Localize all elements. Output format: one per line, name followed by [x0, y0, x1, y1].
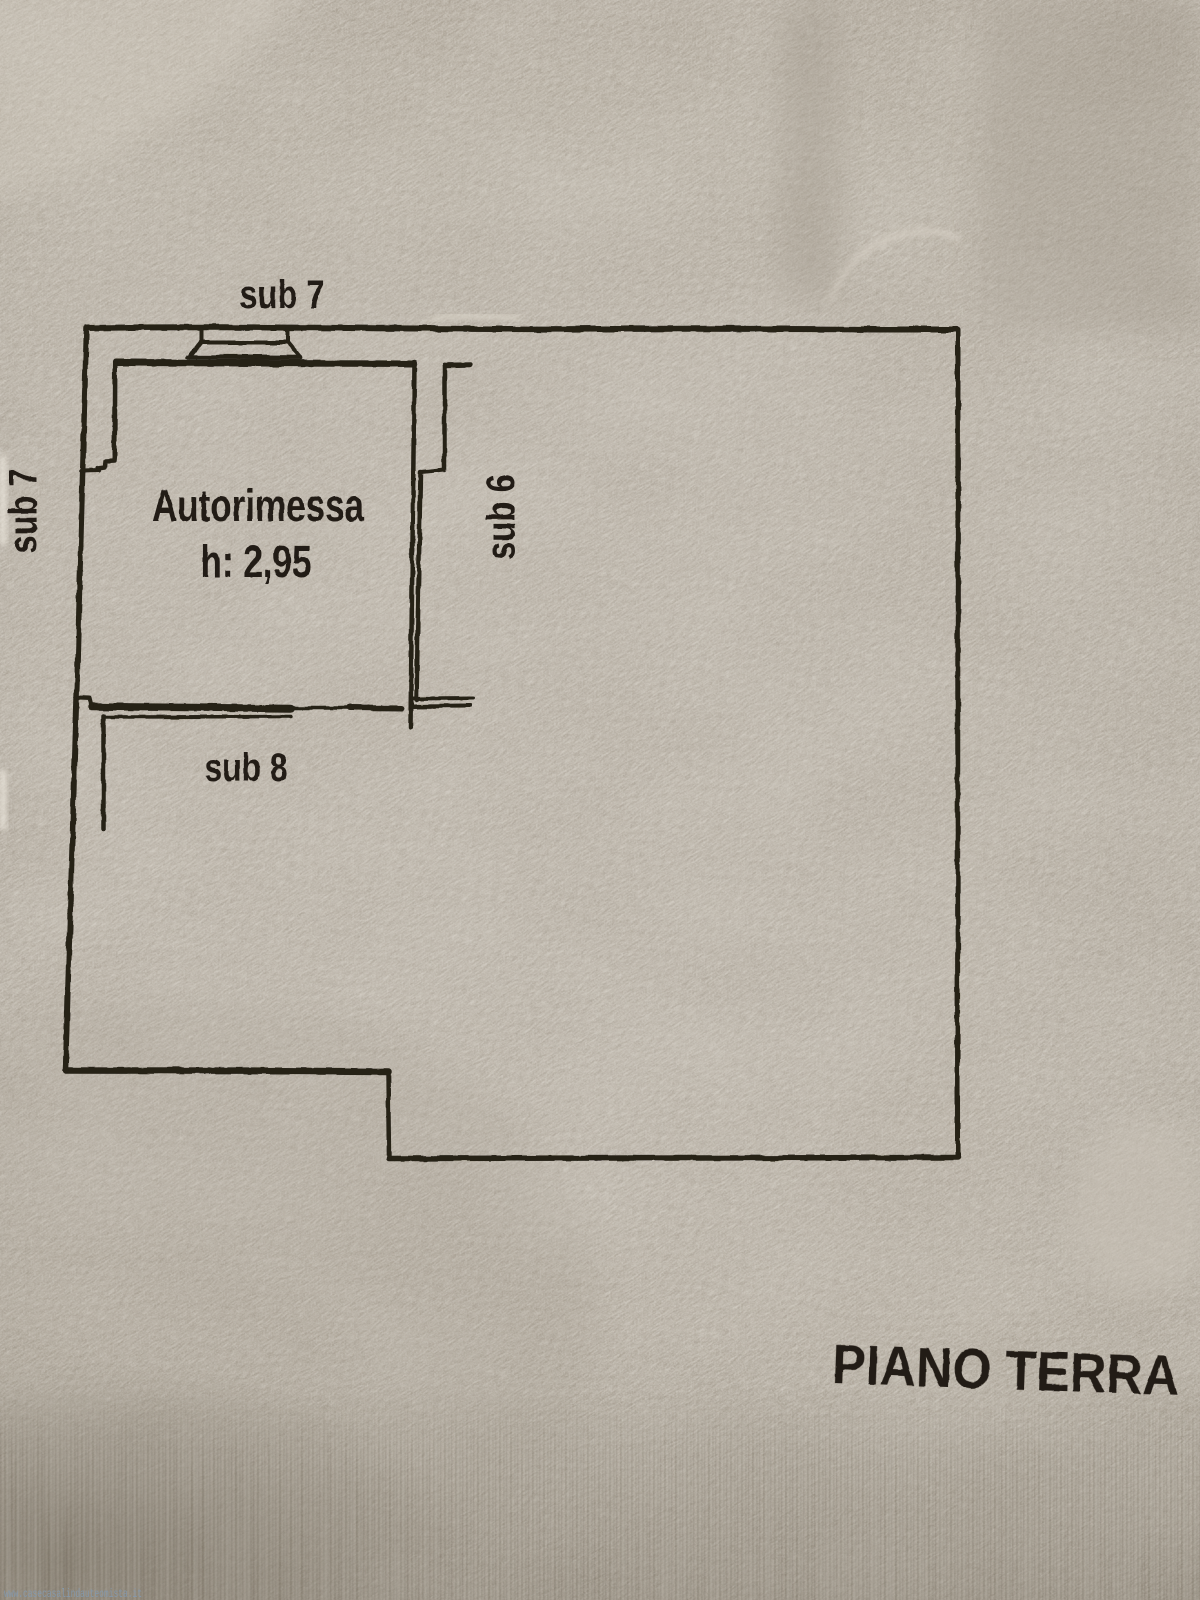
- svg-text:sub 6: sub 6: [479, 474, 523, 560]
- svg-text:h: 2,95: h: 2,95: [201, 536, 312, 587]
- svg-text:Autorimessa: Autorimessa: [152, 480, 365, 531]
- svg-text:www.casecasalindauteomista.it: www.casecasalindauteomista.it: [4, 1587, 142, 1600]
- svg-text:PIANO TERRA: PIANO TERRA: [831, 1332, 1180, 1407]
- svg-text:sub 7: sub 7: [1, 469, 45, 554]
- svg-text:sub 7: sub 7: [240, 273, 325, 317]
- svg-text:sub 8: sub 8: [205, 746, 288, 790]
